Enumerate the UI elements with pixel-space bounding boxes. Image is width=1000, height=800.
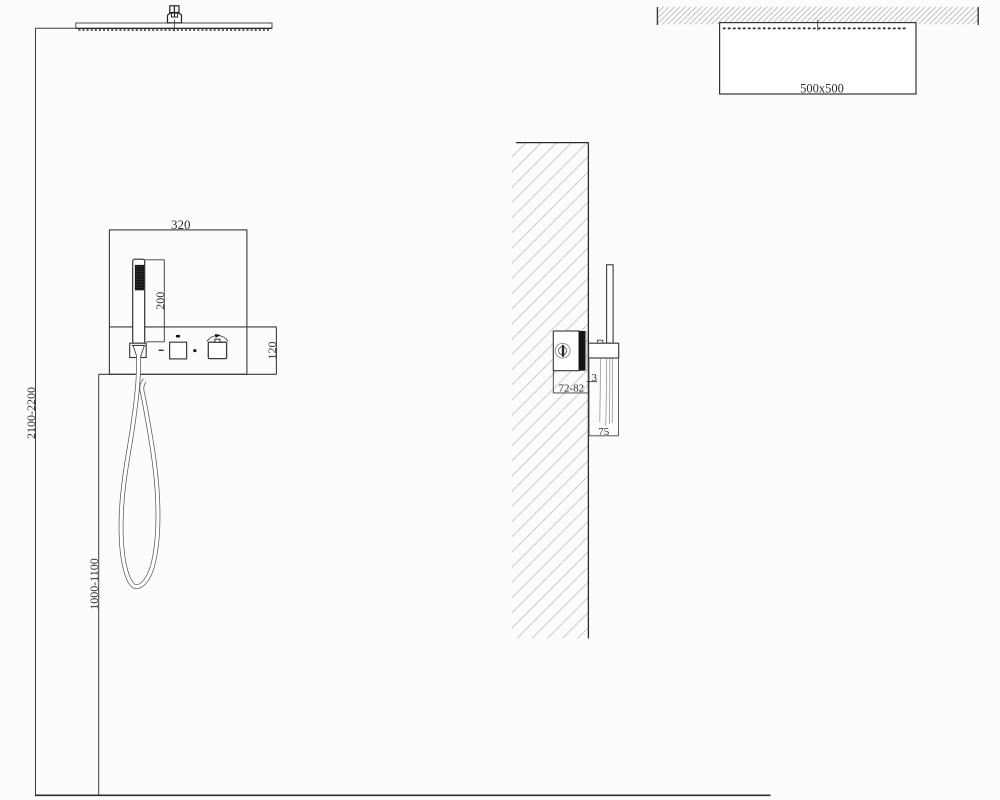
svg-text:320: 320 <box>171 217 191 232</box>
svg-text:3: 3 <box>592 372 598 384</box>
svg-text:72-82: 72-82 <box>558 382 584 394</box>
svg-text:2100-2200: 2100-2200 <box>24 387 38 439</box>
svg-text:500x500: 500x500 <box>800 82 844 96</box>
svg-text:200: 200 <box>153 292 167 310</box>
svg-text:120: 120 <box>265 342 279 360</box>
svg-text:1000-1100: 1000-1100 <box>87 558 101 610</box>
svg-text:75: 75 <box>598 426 610 438</box>
